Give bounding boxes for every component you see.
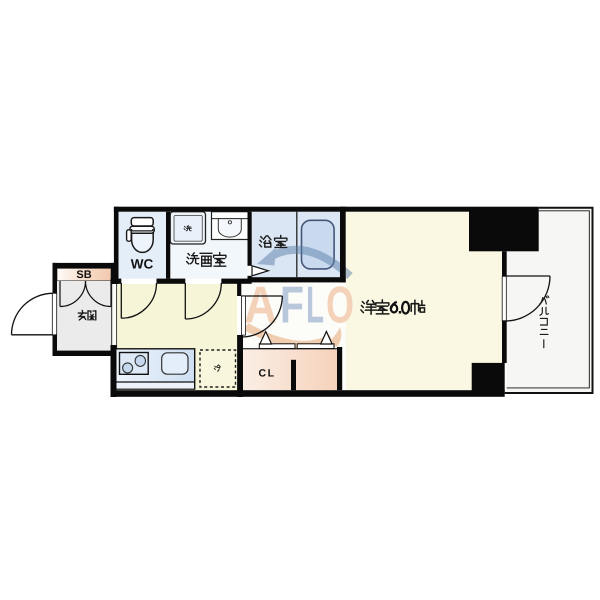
svg-text:WC: WC (131, 257, 154, 272)
svg-text:SB: SB (76, 269, 91, 281)
svg-text:A: A (244, 277, 277, 335)
svg-text:CL: CL (259, 368, 276, 380)
svg-text:F: F (280, 277, 304, 335)
svg-text:L: L (306, 277, 324, 335)
svg-text:O: O (326, 277, 354, 335)
